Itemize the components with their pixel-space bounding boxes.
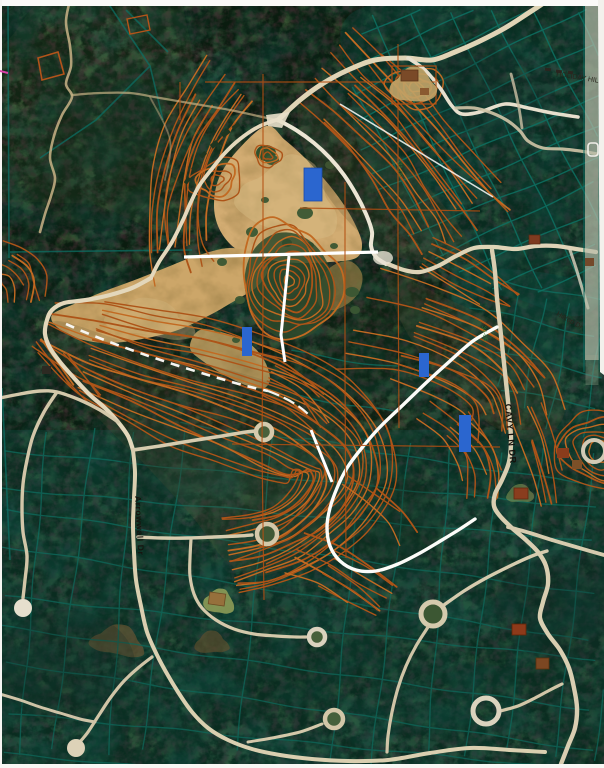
svg-text:31-05: 31-05 bbox=[396, 162, 403, 178]
